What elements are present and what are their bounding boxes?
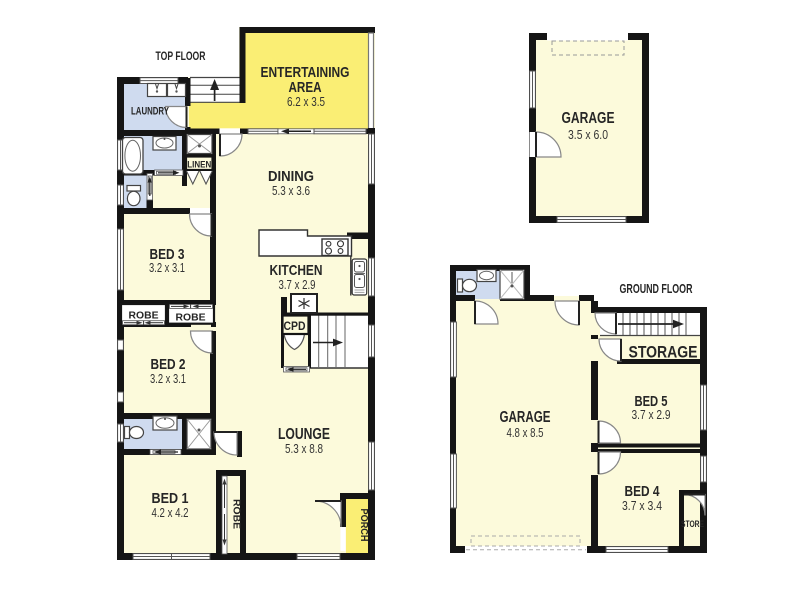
svg-text:5.3 x 8.8: 5.3 x 8.8 <box>285 442 323 456</box>
svg-text:3.7 x 2.9: 3.7 x 2.9 <box>279 278 316 292</box>
svg-text:LOUNGE: LOUNGE <box>278 426 330 443</box>
svg-text:AREA: AREA <box>289 79 322 96</box>
svg-text:LINEN: LINEN <box>187 160 211 171</box>
svg-text:6.2 x 3.5: 6.2 x 3.5 <box>287 95 325 109</box>
svg-text:3.2 x 3.1: 3.2 x 3.1 <box>149 261 185 275</box>
svg-text:5.3 x 3.6: 5.3 x 3.6 <box>272 184 310 198</box>
svg-text:LAUNDRY: LAUNDRY <box>131 106 169 118</box>
svg-text:KITCHEN: KITCHEN <box>270 262 323 279</box>
svg-text:4.8 x 8.5: 4.8 x 8.5 <box>507 426 544 440</box>
svg-text:3.7 x 2.9: 3.7 x 2.9 <box>632 408 671 422</box>
svg-text:ROBE: ROBE <box>176 312 206 324</box>
svg-text:ROBE: ROBE <box>129 310 159 322</box>
svg-text:DINING: DINING <box>268 168 314 185</box>
svg-text:3.7 x 3.4: 3.7 x 3.4 <box>622 499 662 513</box>
svg-text:3.2 x 3.1: 3.2 x 3.1 <box>150 372 186 386</box>
svg-text:STORAGE: STORAGE <box>629 343 698 362</box>
svg-text:3.5 x 6.0: 3.5 x 6.0 <box>568 128 608 142</box>
svg-text:STORE: STORE <box>681 519 704 529</box>
svg-text:BED 1: BED 1 <box>152 490 189 507</box>
svg-text:GARAGE: GARAGE <box>500 409 551 426</box>
svg-text:CPD: CPD <box>284 319 306 333</box>
svg-text:GROUND FLOOR: GROUND FLOOR <box>620 282 693 296</box>
svg-text:GARAGE: GARAGE <box>562 110 615 127</box>
svg-text:4.2 x 4.2: 4.2 x 4.2 <box>152 506 189 520</box>
svg-text:BED 4: BED 4 <box>625 483 661 500</box>
svg-text:ROBE: ROBE <box>231 499 243 529</box>
svg-text:TOP FLOOR: TOP FLOOR <box>156 49 206 63</box>
svg-text:BED 2: BED 2 <box>151 356 186 373</box>
